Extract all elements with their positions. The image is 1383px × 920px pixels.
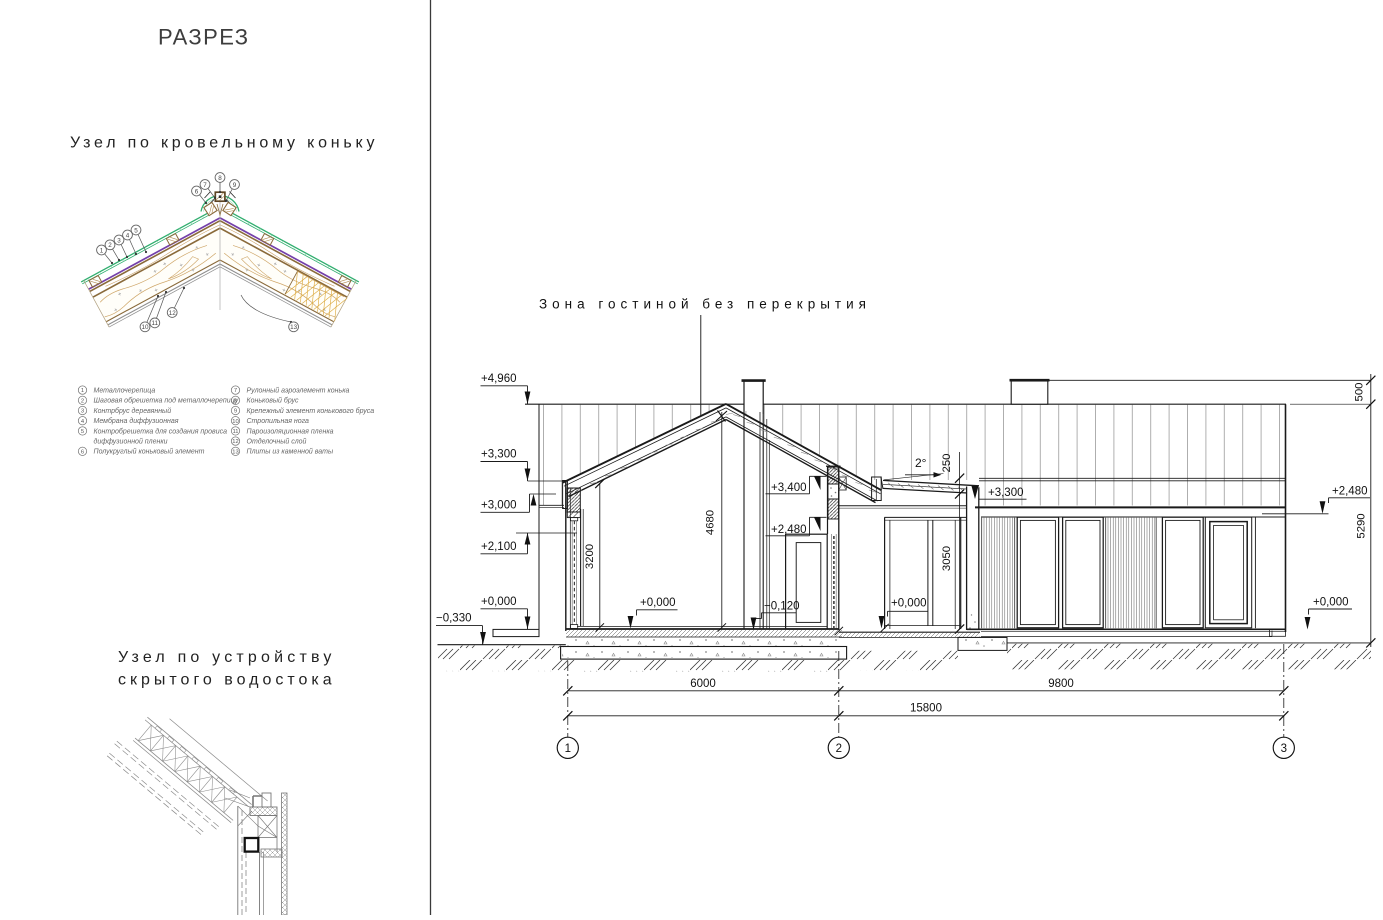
svg-text:+0,000: +0,000: [640, 597, 676, 609]
svg-text:+4,960: +4,960: [481, 373, 517, 385]
svg-text:2: 2: [81, 398, 84, 404]
svg-text:9: 9: [233, 182, 237, 189]
svg-text:+3,300: +3,300: [481, 449, 517, 461]
svg-text:Пароизоляционная пленка: Пароизоляционная пленка: [247, 428, 334, 435]
svg-text:500: 500: [1354, 383, 1366, 402]
svg-text:9: 9: [234, 409, 237, 415]
svg-text:1: 1: [100, 247, 104, 254]
svg-text:диффузионной пленки: диффузионной пленки: [94, 438, 168, 446]
svg-text:Рулонный аэроэлемент конька: Рулонный аэроэлемент конька: [247, 387, 350, 395]
svg-text:11: 11: [152, 320, 159, 327]
svg-text:Отделочный слой: Отделочный слой: [247, 438, 307, 446]
svg-text:Шаговая обрешетка под металлоч: Шаговая обрешетка под металлочерепицу: [94, 397, 239, 405]
svg-text:3050: 3050: [941, 546, 953, 571]
svg-text:2: 2: [836, 743, 842, 755]
svg-text:+0,000: +0,000: [481, 596, 517, 608]
svg-text:7: 7: [203, 182, 207, 189]
svg-text:+0,000: +0,000: [891, 598, 927, 610]
svg-text:250: 250: [941, 454, 953, 473]
svg-text:+2,100: +2,100: [481, 541, 517, 553]
svg-text:+2,480: +2,480: [1332, 486, 1368, 498]
svg-text:12: 12: [169, 310, 177, 317]
svg-text:Металлочерепица: Металлочерепица: [94, 388, 156, 395]
svg-text:4680: 4680: [705, 510, 717, 535]
svg-text:11: 11: [232, 429, 238, 435]
svg-text:3: 3: [81, 409, 84, 415]
svg-text:Плиты из каменной ваты: Плиты из каменной ваты: [247, 448, 334, 456]
svg-text:Зона гостиной без перекрытия: Зона гостиной без перекрытия: [539, 297, 871, 312]
svg-text:9800: 9800: [1048, 678, 1074, 690]
svg-text:Полукруглый коньковый элемент: Полукруглый коньковый элемент: [94, 448, 205, 456]
svg-text:6000: 6000: [690, 678, 716, 690]
svg-text:Коньковый брус: Коньковый брус: [247, 397, 299, 405]
svg-text:10: 10: [232, 419, 238, 425]
svg-text:6: 6: [195, 188, 199, 195]
svg-text:5: 5: [81, 429, 84, 435]
svg-text:Узел по кровельному коньку: Узел по кровельному коньку: [70, 135, 378, 152]
svg-text:8: 8: [218, 175, 222, 182]
svg-text:10: 10: [141, 324, 149, 331]
svg-text:Контрбрус деревянный: Контрбрус деревянный: [94, 407, 172, 415]
svg-text:7: 7: [234, 388, 237, 394]
svg-text:−0,330: −0,330: [436, 613, 472, 625]
svg-text:13: 13: [290, 324, 298, 331]
svg-text:Мембрана диффузионная: Мембрана диффузионная: [94, 417, 179, 425]
svg-text:Узел по устройству: Узел по устройству: [118, 649, 336, 666]
svg-text:Крепежный элемент конькового б: Крепежный элемент конькового бруса: [247, 407, 375, 415]
svg-text:15800: 15800: [910, 703, 942, 715]
svg-text:+3,000: +3,000: [481, 500, 517, 512]
svg-text:3: 3: [1281, 743, 1287, 755]
svg-text:Стропильная нога: Стропильная нога: [247, 418, 310, 425]
svg-text:5290: 5290: [1356, 513, 1368, 538]
svg-text:1: 1: [565, 743, 571, 755]
svg-text:скрытого водостока: скрытого водостока: [118, 672, 336, 689]
svg-text:4: 4: [126, 232, 130, 239]
svg-text:+0,000: +0,000: [1313, 597, 1349, 609]
svg-text:РАЗРЕЗ: РАЗРЕЗ: [158, 25, 249, 50]
svg-text:13: 13: [232, 449, 238, 455]
svg-text:+3,400: +3,400: [771, 482, 807, 494]
svg-text:2°: 2°: [915, 456, 927, 470]
svg-text:Контробрешетка для создания пр: Контробрешетка для создания провиса: [94, 427, 228, 435]
svg-text:5: 5: [134, 227, 138, 234]
svg-text:3: 3: [117, 237, 121, 244]
svg-text:6: 6: [81, 449, 84, 455]
svg-text:12: 12: [232, 439, 238, 445]
svg-text:8: 8: [234, 398, 237, 404]
svg-text:+3,300: +3,300: [988, 487, 1024, 499]
svg-text:−0,120: −0,120: [764, 601, 800, 613]
svg-text:3200: 3200: [584, 544, 596, 569]
svg-text:1: 1: [81, 388, 84, 394]
svg-text:+2,480: +2,480: [771, 524, 807, 536]
svg-text:2: 2: [108, 242, 112, 249]
